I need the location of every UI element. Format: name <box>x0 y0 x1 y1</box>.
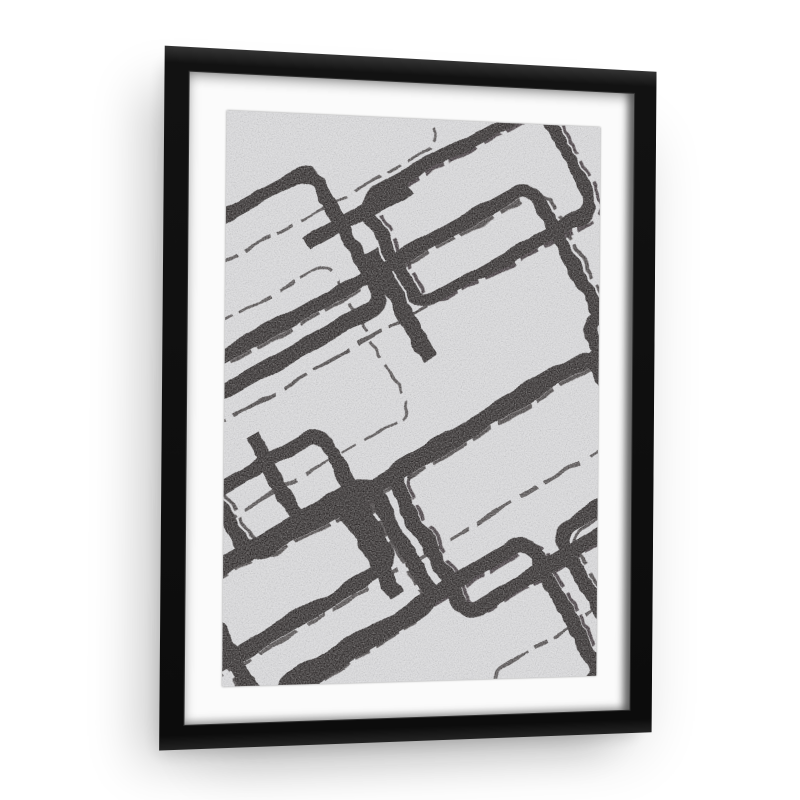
framed-print <box>159 46 656 751</box>
artwork-paper <box>222 110 600 686</box>
wall-background <box>0 0 800 800</box>
mat-board <box>184 72 634 725</box>
paper-grain-light <box>222 110 600 686</box>
abstract-brush-artwork <box>222 110 600 686</box>
picture-frame <box>159 46 656 751</box>
